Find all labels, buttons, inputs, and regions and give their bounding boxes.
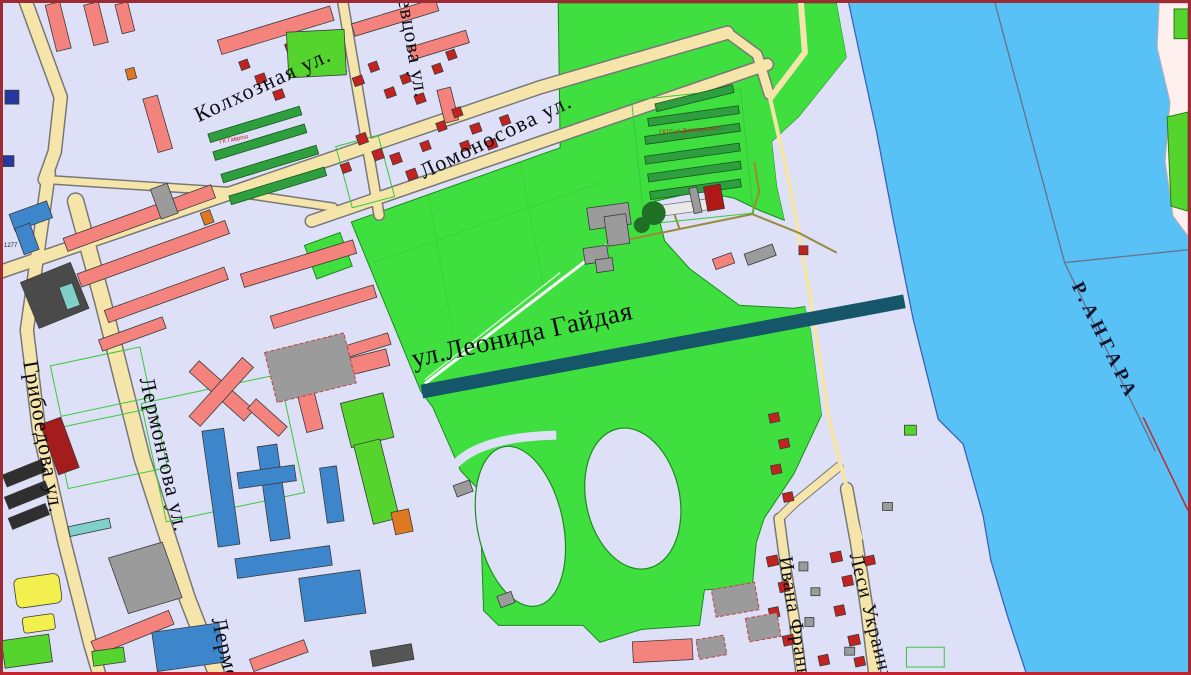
- map-graphics: [3, 3, 1188, 672]
- map-canvas[interactable]: Колхозная ул. Ломоносова ул. Шевцова ул.…: [0, 0, 1191, 675]
